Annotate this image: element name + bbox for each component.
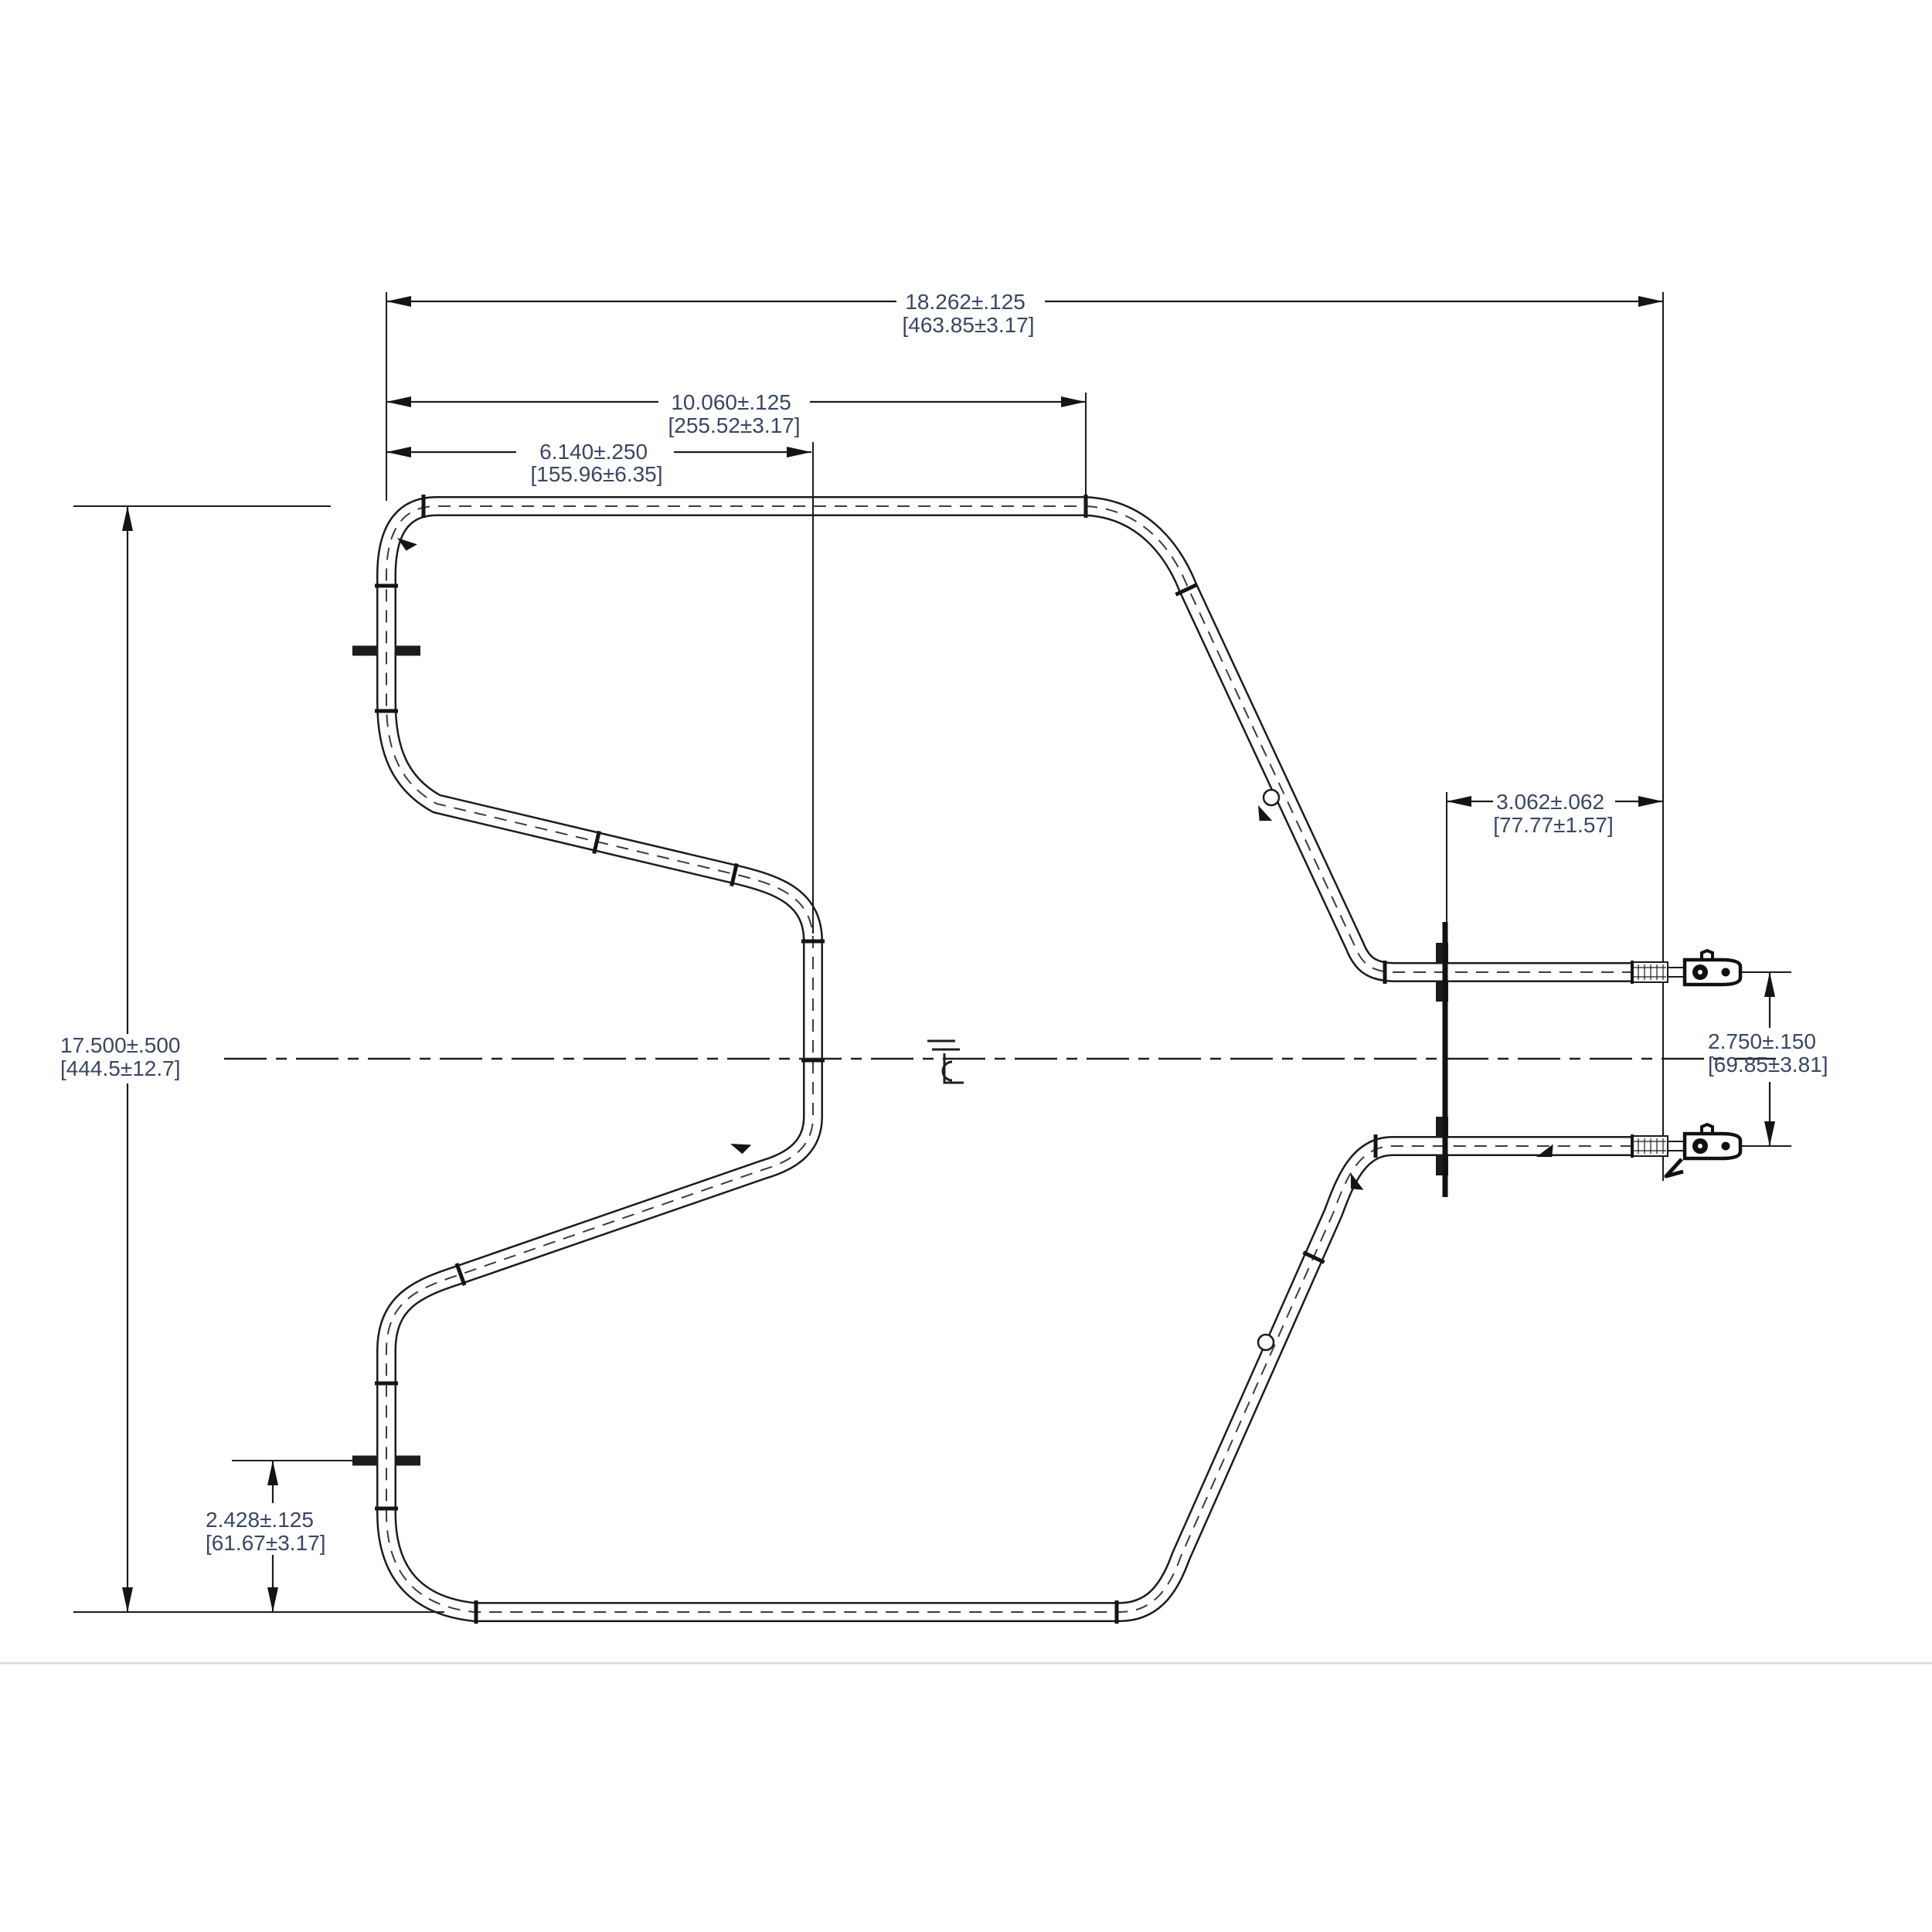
dim-bracket-offset: 3.062±.062 [77.77±1.57]: [1493, 790, 1614, 837]
centerline-symbol: [927, 1041, 964, 1083]
dim-terminal-spacing: 2.750±.150 [69.85±3.81]: [1708, 1029, 1828, 1077]
terminal-lower: [1632, 1124, 1740, 1176]
dim-overall-height: 17.500±.500 [444.5±12.7]: [60, 1033, 186, 1080]
bend-mark-arrow: [1253, 803, 1273, 826]
terminal-rivet-small: [1722, 968, 1730, 977]
arrowhead: [386, 447, 411, 457]
arrowhead: [1638, 796, 1663, 807]
arrowhead: [787, 447, 811, 457]
arrowhead: [1764, 1121, 1775, 1146]
arrowhead: [1447, 796, 1471, 807]
arrowhead: [267, 1587, 278, 1612]
oven-centerline: [224, 1041, 1785, 1083]
terminal-lock-tab: [1666, 1159, 1683, 1176]
arrowhead: [267, 1461, 278, 1485]
dimension-labels: 18.262±.125 [463.85±3.17] 10.060±.125 [2…: [60, 290, 1828, 1555]
dim-overall-length: 18.262±.125 [463.85±3.17]: [902, 290, 1034, 337]
terminal-pin: [1668, 1141, 1685, 1151]
terminal-rivet-center: [1698, 970, 1702, 975]
arrowhead: [1061, 396, 1086, 407]
clip-hole-lower-diagonal: [1258, 1335, 1274, 1350]
arrowhead: [122, 1587, 133, 1612]
terminal-rivet-center: [1698, 1144, 1702, 1148]
arrowhead: [386, 396, 411, 407]
terminal-pin: [1668, 968, 1685, 977]
dim-bottom-clip-offset: 2.428±.125 [61.67±3.17]: [206, 1508, 326, 1555]
terminal-rivet-small: [1722, 1142, 1730, 1151]
bend-reference-marks: [394, 532, 1557, 1193]
crimp-section: [1632, 1136, 1668, 1156]
arrowhead: [1764, 972, 1775, 997]
arrowhead: [386, 296, 411, 307]
extension-lines: [73, 292, 1791, 1612]
dim-center-leg: 6.140±.250 [155.96±6.35]: [530, 440, 662, 486]
dimension-arrows: [122, 296, 1775, 1612]
engineering-drawing-page: 18.262±.125 [463.85±3.17] 10.060±.125 [2…: [0, 0, 1932, 1932]
arrowhead: [1638, 296, 1663, 307]
crimp-section: [1632, 962, 1668, 982]
bake-element-drawing: 18.262±.125 [463.85±3.17] 10.060±.125 [2…: [0, 0, 1932, 1932]
bend-mark-arrow: [729, 1138, 752, 1155]
terminal-upper: [1632, 951, 1740, 985]
arrowhead: [122, 506, 133, 531]
dim-top-segment: 10.060±.125 [255.52±3.17]: [668, 390, 800, 437]
clip-hole-upper-diagonal: [1264, 790, 1279, 805]
